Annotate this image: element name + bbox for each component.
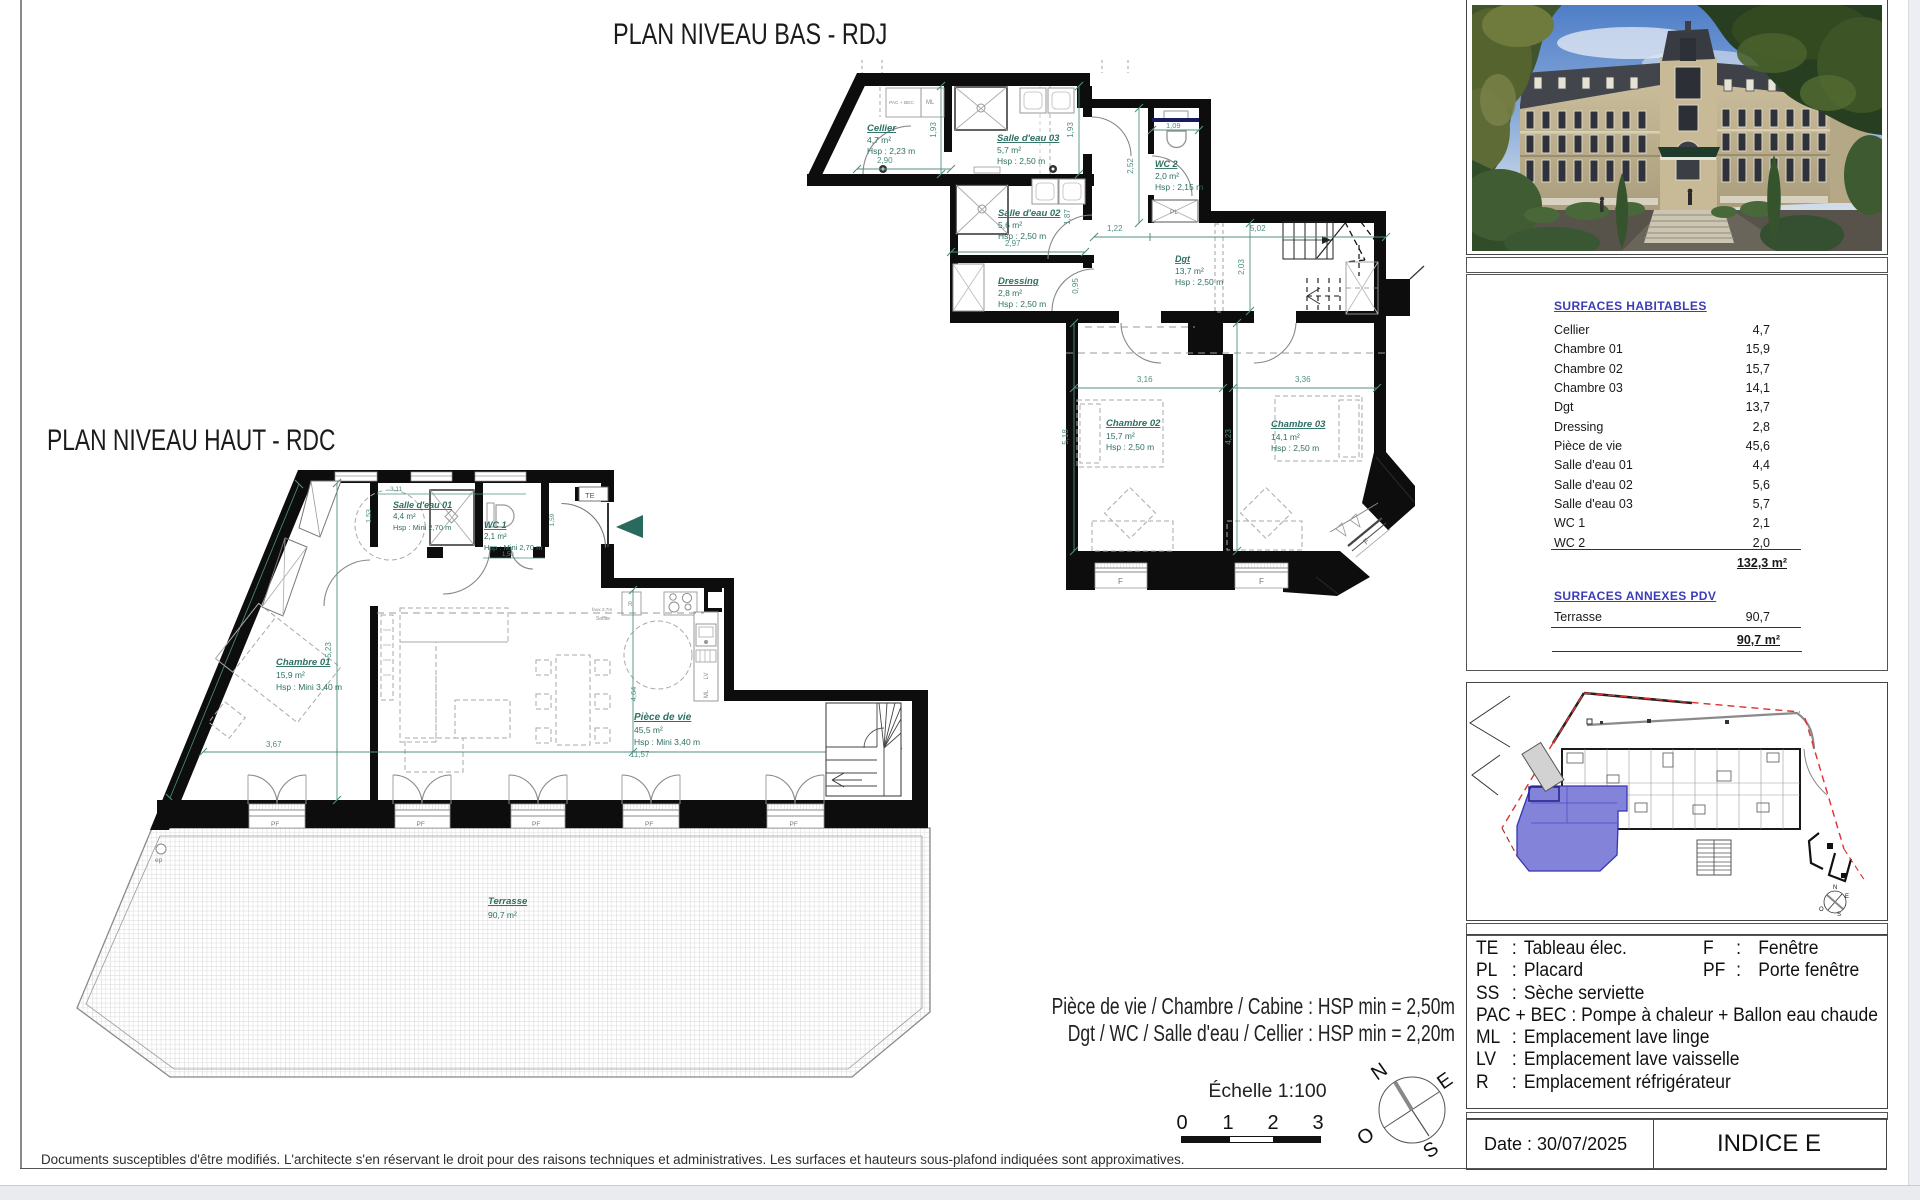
svg-text:Hsp : 2,50 m: Hsp : 2,50 m: [1271, 443, 1319, 453]
svg-text:PF: PF: [645, 821, 653, 828]
svg-text:14,1 m²: 14,1 m²: [1271, 432, 1300, 442]
svg-text:PF: PF: [417, 821, 425, 828]
svg-text:PAC + BEC: PAC + BEC: [889, 100, 914, 106]
svg-text:1,59: 1,59: [549, 513, 556, 526]
svg-text:3,11: 3,11: [390, 486, 403, 493]
svg-text:Dressing: Dressing: [998, 276, 1039, 287]
svg-text:2,1 m²: 2,1 m²: [484, 532, 507, 541]
svg-text:2,90: 2,90: [877, 156, 893, 165]
svg-text:3,67: 3,67: [266, 740, 282, 749]
svg-text:Hsp : 2,50 m: Hsp : 2,50 m: [998, 231, 1046, 241]
svg-text:2,8 m²: 2,8 m²: [998, 288, 1022, 298]
svg-text:Hsp : Mini 3,40 m: Hsp : Mini 3,40 m: [634, 737, 700, 747]
svg-text:F: F: [1259, 577, 1264, 586]
svg-text:3,36: 3,36: [1295, 375, 1311, 384]
svg-text:1,50: 1,50: [502, 552, 514, 558]
svg-text:2,52: 2,52: [1126, 158, 1135, 174]
svg-text:15,7 m²: 15,7 m²: [1106, 431, 1135, 441]
svg-text:E: E: [1845, 894, 1849, 900]
svg-text:N: N: [1833, 885, 1837, 891]
svg-text:Hsp : 2,23 m: Hsp : 2,23 m: [867, 146, 915, 156]
svg-text:ep: ep: [155, 857, 163, 864]
svg-text:Chambre 01: Chambre 01: [276, 657, 330, 668]
svg-text:4,23: 4,23: [1224, 429, 1233, 445]
svg-text:Chambre 03: Chambre 03: [1271, 419, 1326, 430]
svg-text:Soffite: Soffite: [596, 616, 610, 622]
svg-text:1,93: 1,93: [1066, 122, 1075, 138]
svg-text:WC 1: WC 1: [484, 520, 507, 530]
svg-text:Cellier: Cellier: [867, 123, 897, 134]
svg-text:Hsp : Mini 3,40 m: Hsp : Mini 3,40 m: [276, 682, 342, 692]
svg-text:PF: PF: [532, 821, 540, 828]
svg-text:PL: PL: [1170, 209, 1178, 216]
svg-text:Hsp : 2,50 m: Hsp : 2,50 m: [997, 156, 1045, 166]
svg-text:1,22: 1,22: [1107, 224, 1123, 233]
svg-text:WC 2: WC 2: [1155, 159, 1178, 169]
svg-text:4,4 m²: 4,4 m²: [393, 512, 416, 521]
svg-text:45,5 m²: 45,5 m²: [634, 725, 663, 735]
svg-text:E: E: [1433, 1068, 1457, 1094]
svg-text:Terrasse: Terrasse: [488, 896, 528, 907]
svg-text:0,95: 0,95: [1071, 278, 1080, 294]
svg-text:Hsp : 2,50 m: Hsp : 2,50 m: [998, 299, 1046, 309]
svg-text:S: S: [1837, 912, 1841, 918]
svg-text:Chambre 02: Chambre 02: [1106, 418, 1161, 429]
svg-text:13,7 m²: 13,7 m²: [1175, 266, 1204, 276]
svg-text:11,57: 11,57: [630, 750, 650, 759]
svg-text:15,9 m²: 15,9 m²: [276, 670, 305, 680]
svg-text:5,18: 5,18: [1061, 429, 1070, 445]
svg-text:Hsp : 2,15 m: Hsp : 2,15 m: [1155, 182, 1203, 192]
svg-text:5,6 m²: 5,6 m²: [998, 220, 1022, 230]
svg-text:2,03: 2,03: [1237, 259, 1246, 275]
svg-text:Hsp : 2,50 m: Hsp : 2,50 m: [1106, 442, 1154, 452]
svg-text:Pièce de vie: Pièce de vie: [634, 712, 692, 723]
svg-text:F: F: [1362, 536, 1372, 546]
svg-text:Salle d'eau 02: Salle d'eau 02: [998, 208, 1061, 219]
svg-text:ML: ML: [704, 689, 710, 698]
svg-text:5,7 m²: 5,7 m²: [997, 145, 1021, 155]
svg-text:O: O: [1353, 1123, 1378, 1150]
svg-text:5,23: 5,23: [324, 642, 333, 658]
svg-text:faux 2,7m: faux 2,7m: [592, 607, 612, 612]
svg-text:F: F: [1118, 577, 1123, 586]
svg-text:PF: PF: [790, 821, 798, 828]
svg-text:1,53: 1,53: [366, 509, 373, 523]
svg-text:2,0 m²: 2,0 m²: [1155, 171, 1179, 181]
svg-text:N: N: [1367, 1059, 1391, 1085]
svg-text:90,7 m²: 90,7 m²: [488, 910, 517, 920]
svg-text:Hsp : Mini 2,70 m: Hsp : Mini 2,70 m: [393, 523, 451, 532]
svg-text:O: O: [1819, 907, 1824, 913]
svg-text:TE: TE: [585, 491, 595, 500]
svg-text:4,64: 4,64: [629, 687, 638, 702]
svg-text:Hsp : 2,50 m: Hsp : 2,50 m: [1175, 277, 1223, 287]
svg-text:Salle d'eau 01: Salle d'eau 01: [393, 500, 452, 510]
svg-text:3,16: 3,16: [1137, 375, 1153, 384]
svg-text:PF: PF: [271, 821, 279, 828]
svg-text:5,02: 5,02: [1250, 224, 1266, 233]
svg-text:LV: LV: [704, 673, 710, 680]
svg-text:R: R: [628, 602, 633, 608]
svg-text:1,87: 1,87: [1063, 209, 1072, 225]
svg-text:Dgt: Dgt: [1175, 254, 1191, 264]
svg-text:4,7 m²: 4,7 m²: [867, 135, 891, 145]
svg-text:ML: ML: [926, 100, 935, 106]
svg-text:Hsp : Mini 2,70 m: Hsp : Mini 2,70 m: [484, 543, 542, 552]
svg-text:1,09: 1,09: [1166, 121, 1181, 130]
svg-text:1,93: 1,93: [929, 122, 938, 138]
svg-text:Salle d'eau 03: Salle d'eau 03: [997, 133, 1060, 144]
